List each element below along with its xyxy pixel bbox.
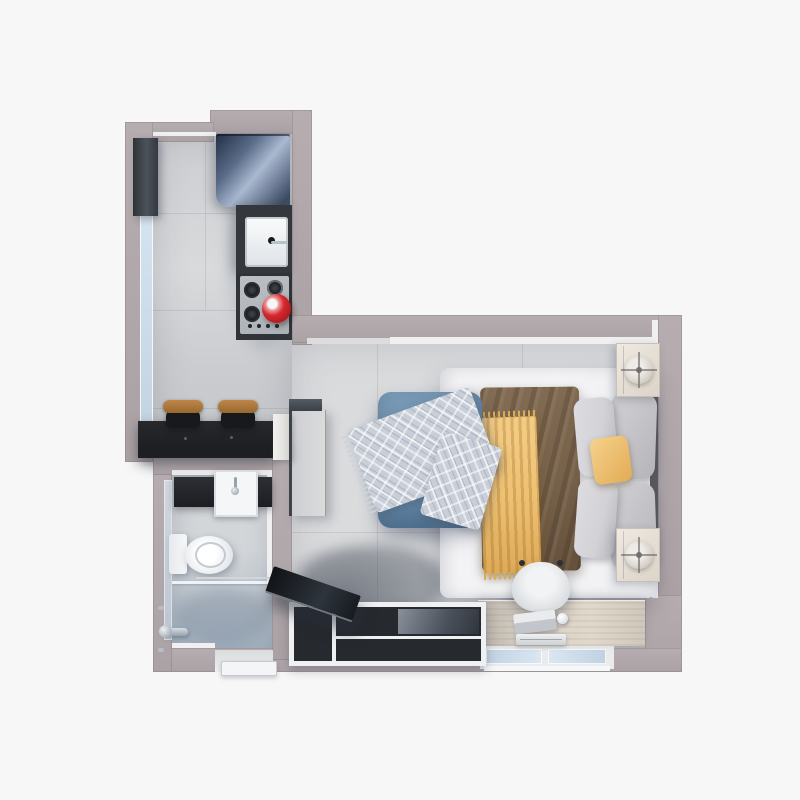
bar-handle [184,437,187,440]
wall-trim [172,643,215,648]
wall-kitchen-right [292,110,312,345]
desk-lamp [557,613,568,624]
desk-chair [512,562,570,612]
burner [244,282,260,298]
tv-console [289,602,486,666]
cooktop [236,273,292,340]
wall-cabinet [133,138,158,216]
bathroom-sink [214,470,258,517]
bathroom-faucet-base [231,487,239,495]
floorplan-canvas [0,0,800,800]
console-shelf-reflection [398,609,479,634]
shower-glass-partition [172,581,272,584]
red-pot [262,294,291,323]
bed-pillow [573,479,618,560]
cooktop-knob [266,324,270,328]
sink-faucet [271,241,288,244]
lamp-finial [636,552,642,558]
shower-fitting [158,606,164,610]
bar-stool-left-base [166,411,200,428]
wall-trim [153,132,216,136]
bar-handle [230,436,233,439]
toilet [185,536,233,574]
shower-knob [159,625,172,638]
bar-stool-left [163,400,203,413]
wall-right [658,315,682,600]
bar-stool-right-base [221,411,255,428]
cooktop-knob [257,324,261,328]
window-pane [548,649,606,664]
nightstand-top [616,343,660,397]
lamp-icon [625,356,653,384]
console-shelf [336,636,481,639]
kitchen-sink-counter [236,205,292,273]
towel-bar [196,577,272,579]
floor-seam [205,132,206,310]
bar-stool-right [218,400,258,413]
window-pane [486,649,542,664]
refrigerator [216,134,290,207]
breakfast-bar [138,421,275,458]
nightstand-bottom [616,528,660,582]
shower-shadow [176,588,271,646]
entry-door [221,661,277,676]
lamp-finial [636,367,642,373]
burner [244,306,260,322]
yellow-pillow [589,435,633,486]
lamp-icon [625,541,653,569]
wardrobe [289,410,326,516]
window-sill [484,666,610,671]
wall-trim [307,338,390,344]
desk-drawer [516,634,566,645]
cooktop-knob [248,324,252,328]
shower-fitting [158,648,164,652]
cooktop-knob [275,324,279,328]
window-strip-top [390,337,652,344]
